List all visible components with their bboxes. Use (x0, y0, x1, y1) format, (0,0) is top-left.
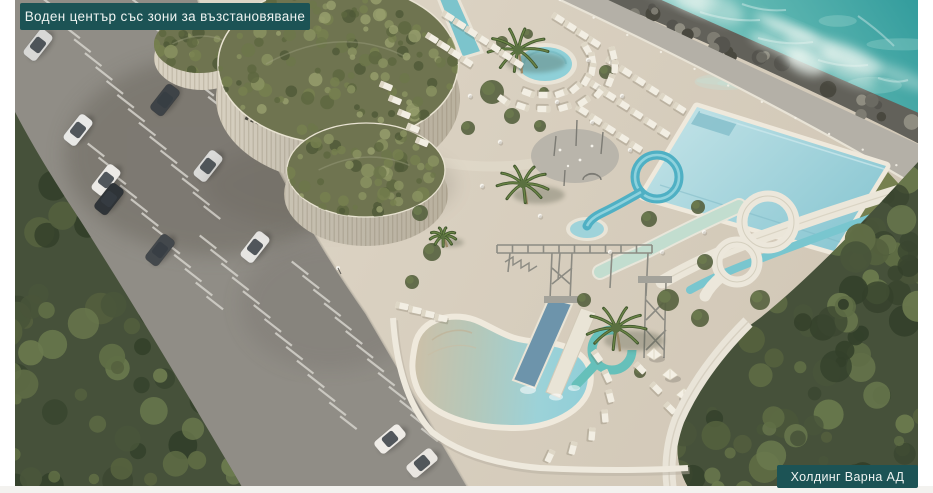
rendered-visual: Воден център със зони за възстановяване … (0, 0, 933, 493)
developer-credit-badge: Холдинг Варна АД (777, 465, 918, 488)
project-title-text: Воден център със зони за възстановяване (25, 9, 306, 24)
project-title-badge: Воден център със зони за възстановяване (20, 3, 310, 30)
aerial-rendering (0, 0, 933, 493)
developer-credit-text: Холдинг Варна АД (791, 470, 905, 484)
